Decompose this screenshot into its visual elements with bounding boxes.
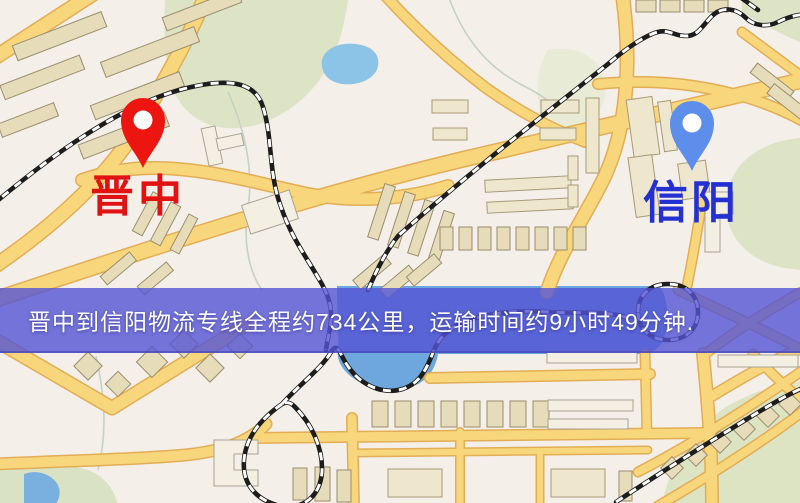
map-canvas [0, 0, 800, 503]
map-image: 晋中 信阳 晋中到信阳物流专线全程约734公里，运输时间约9小时49分钟. [0, 0, 800, 503]
origin-label: 晋中 [90, 175, 186, 219]
destination-label: 信阳 [643, 180, 739, 225]
caption-bar: 晋中到信阳物流专线全程约734公里，运输时间约9小时49分钟. [0, 288, 800, 353]
caption-text: 晋中到信阳物流专线全程约734公里，运输时间约9小时49分钟. [28, 303, 694, 337]
origin-pin-hole [134, 111, 153, 130]
destination-pin-hole [683, 114, 702, 133]
